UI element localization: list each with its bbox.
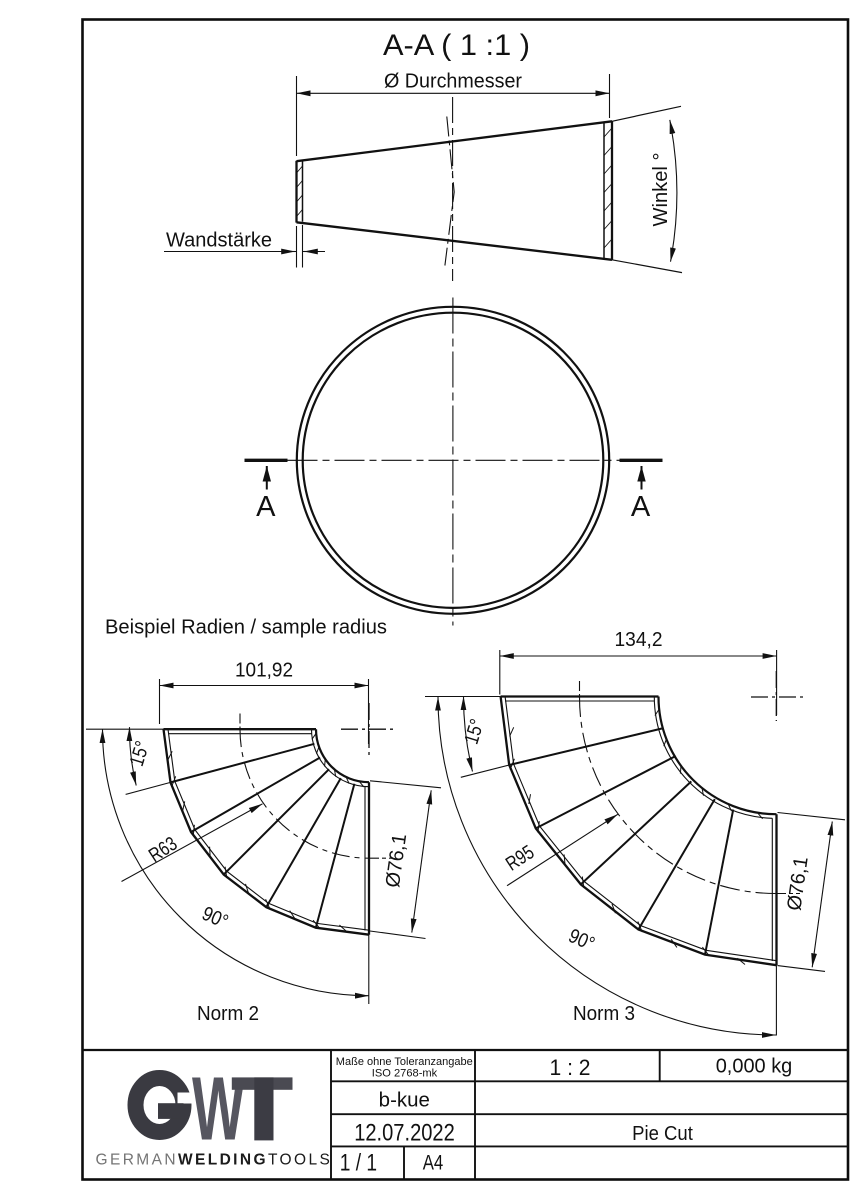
svg-text:Maße ohne Toleranzangabe: Maße ohne Toleranzangabe — [336, 1056, 473, 1068]
svg-text:101,92: 101,92 — [235, 659, 293, 681]
svg-text:A: A — [631, 491, 651, 523]
svg-text:GERMANWELDINGTOOLS: GERMANWELDINGTOOLS — [96, 1152, 333, 1169]
svg-text:1 / 1: 1 / 1 — [340, 1150, 377, 1177]
svg-text:Ø Durchmesser: Ø Durchmesser — [384, 70, 522, 92]
svg-text:b-kue: b-kue — [379, 1089, 430, 1111]
svg-text:Norm 3: Norm 3 — [573, 1002, 635, 1025]
svg-text:Wandstärke: Wandstärke — [166, 230, 272, 252]
svg-text:A-A ( 1 :1 ): A-A ( 1 :1 ) — [383, 29, 530, 62]
svg-text:A: A — [256, 491, 276, 523]
svg-text:ISO 2768-mk: ISO 2768-mk — [372, 1068, 438, 1080]
svg-text:Beispiel Radien / sample radiu: Beispiel Radien / sample radius — [105, 617, 387, 639]
svg-text:Norm 2: Norm 2 — [197, 1002, 259, 1025]
svg-text:0,000 kg: 0,000 kg — [716, 1056, 793, 1078]
svg-text:Pie Cut: Pie Cut — [632, 1123, 693, 1145]
svg-text:12.07.2022: 12.07.2022 — [354, 1120, 455, 1147]
svg-text:1 : 2: 1 : 2 — [550, 1055, 591, 1080]
svg-text:Winkel °: Winkel ° — [650, 153, 672, 227]
svg-text:A4: A4 — [423, 1152, 444, 1175]
svg-text:134,2: 134,2 — [615, 629, 663, 651]
svg-text:W: W — [192, 1058, 245, 1159]
